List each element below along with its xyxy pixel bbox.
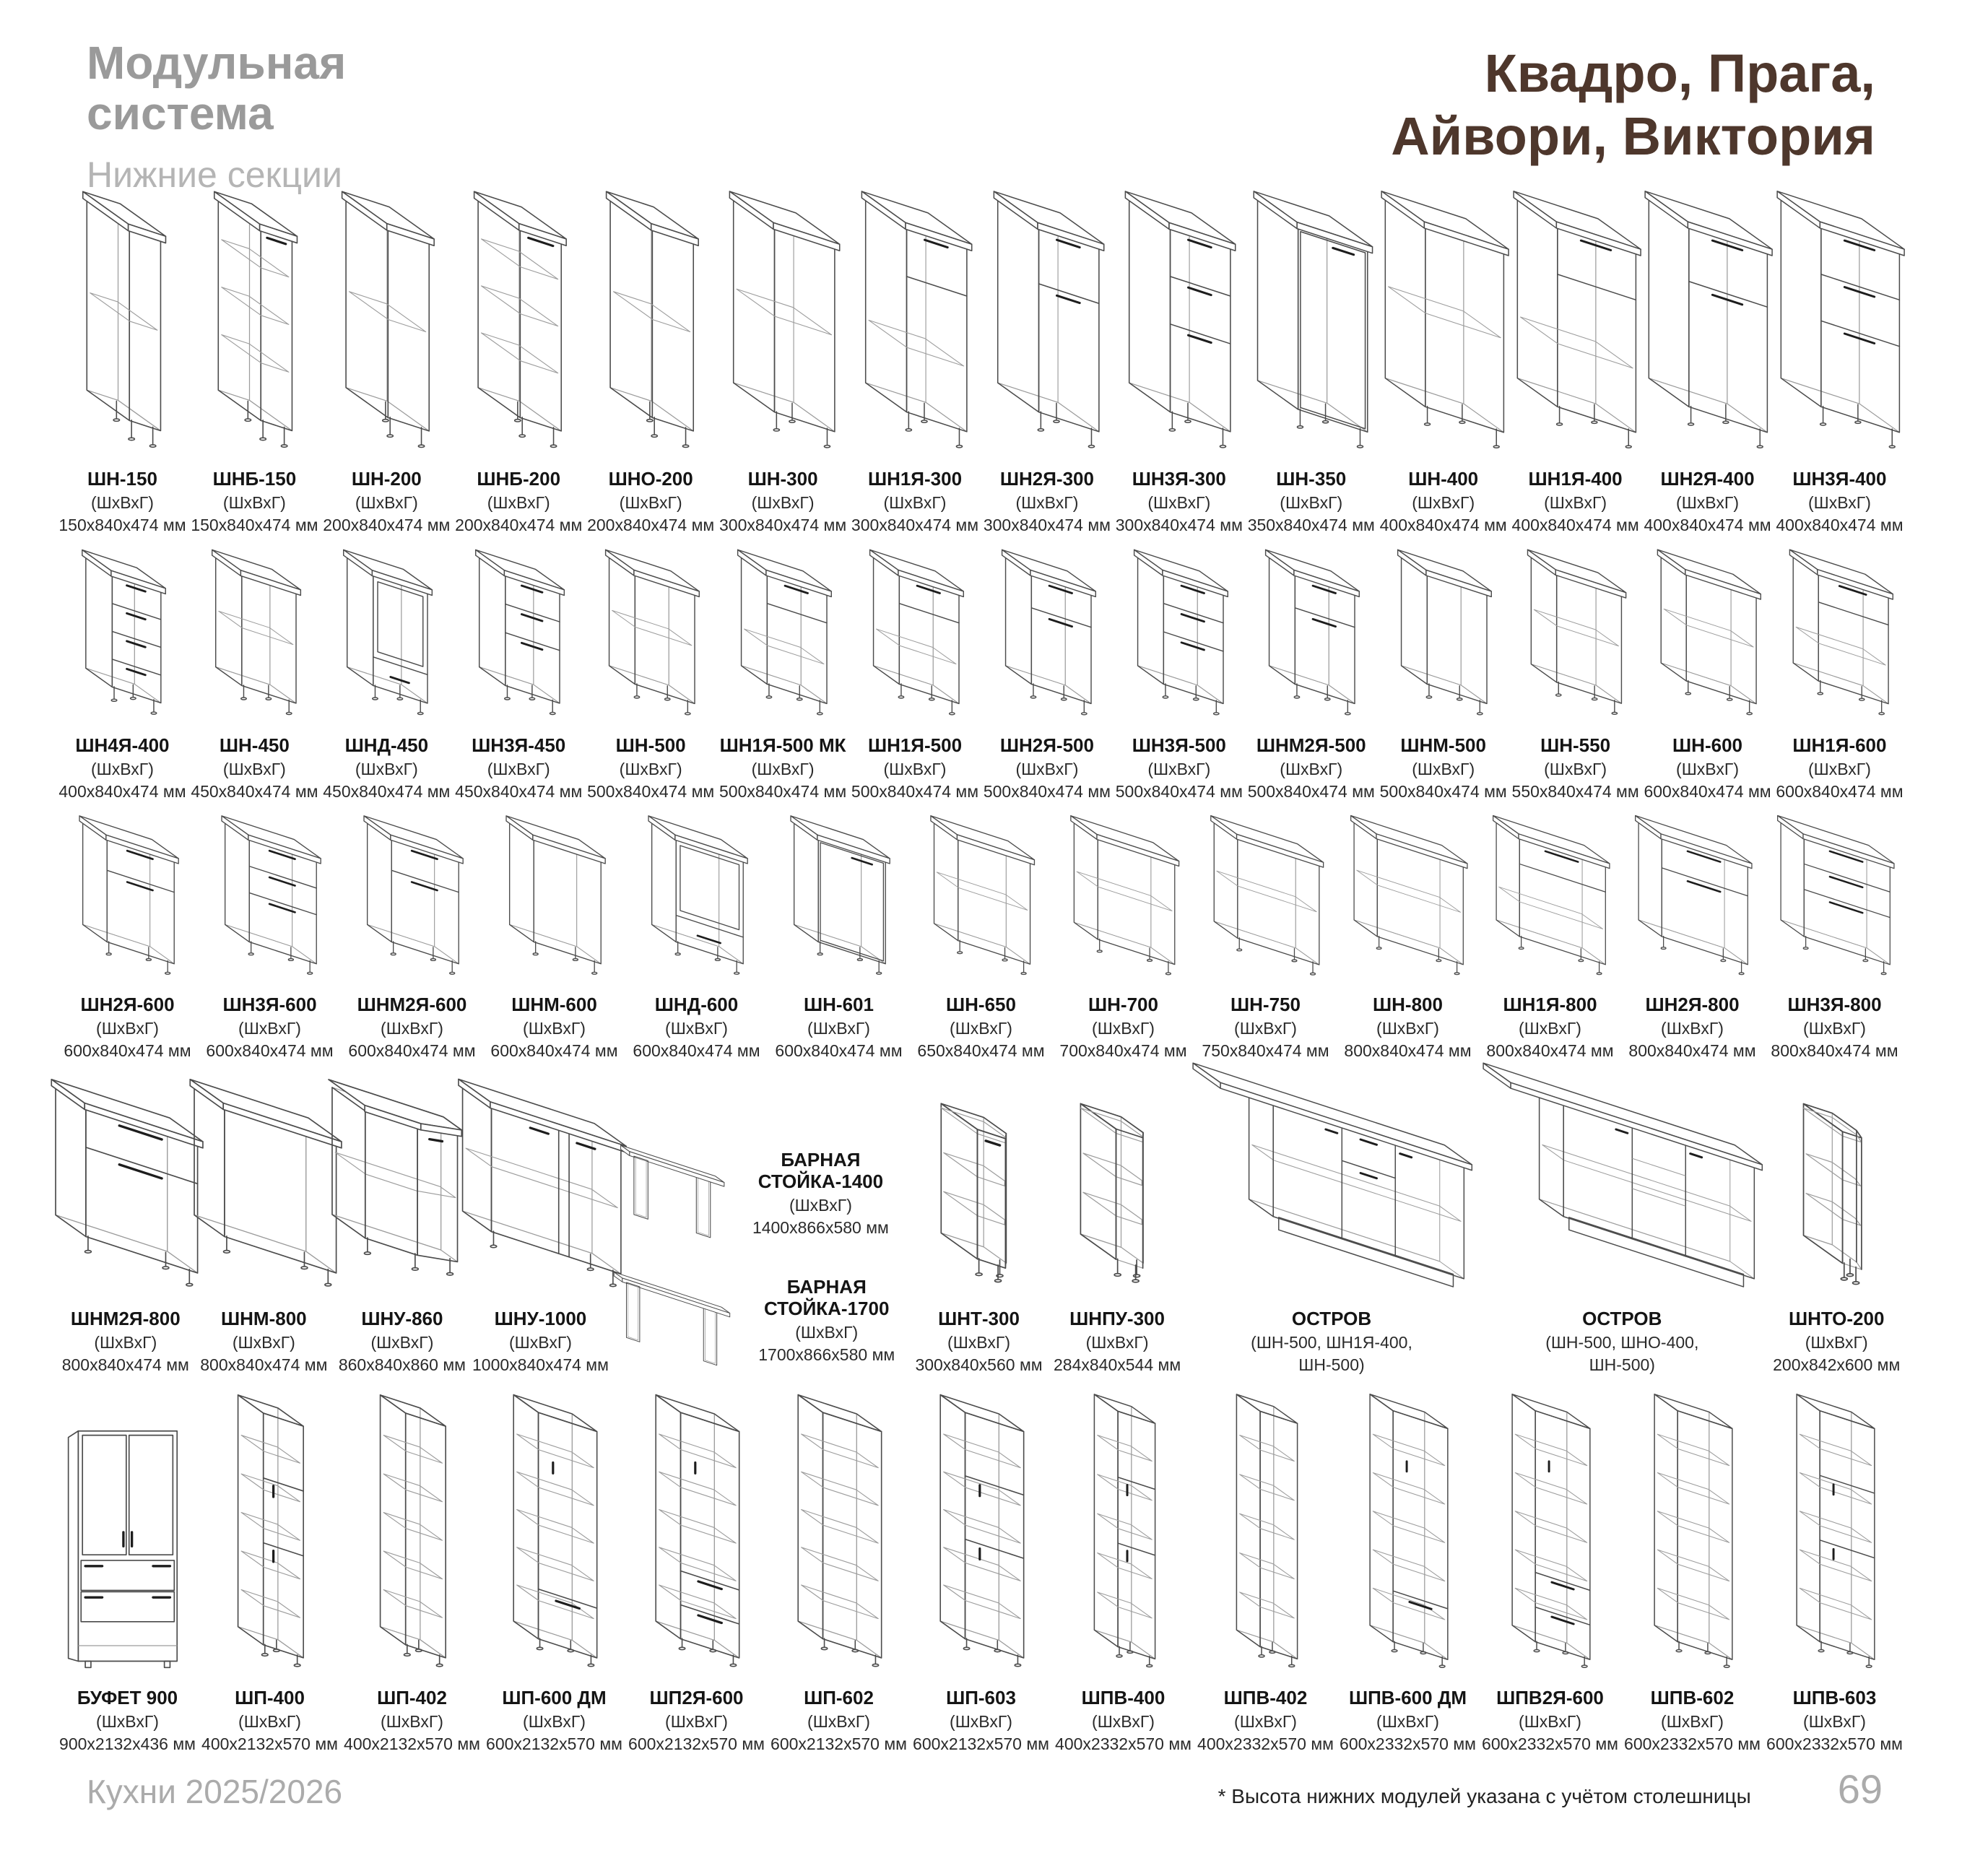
cabinet-drawing	[1225, 1386, 1306, 1677]
dims-value: 400х840х474 мм	[1644, 516, 1771, 535]
product-card: ШН-800(ШхВхГ)800х840х474 мм	[1337, 809, 1479, 1061]
dims-caption: (ШхВхГ)	[620, 760, 682, 779]
drawing-area	[357, 809, 466, 983]
product-name: ШН-150	[87, 468, 157, 490]
dims-caption: (ШхВхГ)	[1544, 760, 1607, 779]
dims-value: 400х2132х570 мм	[201, 1734, 338, 1754]
dims-caption: (ШхВхГ)	[1519, 1019, 1581, 1038]
dims-value: 400х840х474 мм	[1380, 516, 1507, 535]
dims-caption: (ШхВхГ)	[238, 1019, 301, 1038]
dims-caption: (ШхВхГ)	[807, 1712, 870, 1732]
product-card: ШН4Я-400(ШхВхГ)400х840х474 мм	[56, 542, 188, 802]
cabinet-drawing	[75, 544, 170, 724]
product-name: ШН-700	[1088, 994, 1158, 1016]
dims-caption: (ШхВхГ)	[223, 493, 286, 513]
drawing-area	[1345, 809, 1471, 983]
product-name: ШН1Я-500	[868, 734, 962, 757]
dims-caption: (ШхВхГ)	[1661, 1712, 1724, 1732]
drawing-area	[368, 1382, 455, 1677]
cabinet-drawing	[722, 185, 844, 458]
product-card: ШНУ-1000(ШхВхГ)1000х840х474 мм	[472, 1068, 610, 1375]
dims-value: 700х840х474 мм	[1059, 1041, 1186, 1061]
product-name: ШНД-600	[655, 994, 738, 1016]
drawing-area	[929, 1068, 1030, 1298]
catalog-brand: Кухни 2025/2026	[87, 1772, 342, 1811]
drawing-area	[469, 542, 568, 724]
product-card: ШНБ-150(ШхВхГ)150х840х474 мм	[188, 182, 321, 535]
dims-value: 500х840х474 мм	[587, 782, 714, 802]
drawing-area	[599, 182, 703, 458]
cabinet-drawing	[1064, 810, 1183, 983]
cabinet-drawing	[1345, 810, 1471, 983]
dims-value: 400х2332х570 мм	[1197, 1734, 1334, 1754]
dims-caption: (ШхВхГ)	[1544, 493, 1607, 513]
drawing-area	[1638, 182, 1776, 458]
dims-value: 800х840х474 мм	[1486, 1041, 1613, 1061]
cabinet-drawing	[784, 810, 893, 983]
product-card: ШН-200(ШхВхГ)200х840х474 мм	[321, 182, 453, 535]
dims-caption: (ШхВхГ)	[487, 760, 550, 779]
drawing-area	[1501, 1382, 1599, 1677]
dims-value: 500х840х474 мм	[851, 782, 978, 802]
cabinet-drawing	[1127, 544, 1232, 724]
dims-value: 200х840х474 мм	[323, 516, 450, 535]
dims-value: 600х840х474 мм	[1644, 782, 1771, 802]
product-name: ШНМ2Я-600	[357, 994, 467, 1016]
product-card: ШН3Я-400(ШхВхГ)400х840х474 мм	[1774, 182, 1906, 535]
dims-caption: (ШхВхГ)	[1676, 760, 1739, 779]
product-name: ШН2Я-300	[1000, 468, 1094, 490]
dims-value: 600х840х474 мм	[348, 1041, 475, 1061]
drawing-area	[337, 542, 436, 724]
cabinet-drawing	[731, 544, 835, 724]
product-card: ШПВ2Я-600(ШхВхГ)600х2332х570 мм	[1479, 1382, 1621, 1754]
dims-caption: (ШхВхГ)	[950, 1019, 1012, 1038]
dims-value: 450х840х474 мм	[323, 782, 450, 802]
dims-caption: (ШхВхГ)	[523, 1712, 586, 1732]
product-name: ШНБ-150	[213, 468, 297, 490]
product-card: ОСТРОВ(ШН-500, ШН1Я-400,ШН-500)	[1186, 1068, 1477, 1375]
product-card: ШПВ-400(ШхВхГ)400х2332х570 мм	[1052, 1382, 1194, 1754]
dims-caption: (ШхВхГ)	[509, 1333, 572, 1352]
product-name: ШН4Я-400	[75, 734, 169, 757]
dims-caption: (ШхВхГ)	[1376, 1019, 1439, 1038]
dims-caption: (ШхВхГ)	[1803, 1712, 1866, 1732]
drawing-area	[722, 182, 844, 458]
dims-value: 600х840х474 мм	[633, 1041, 760, 1061]
drawing-area	[1127, 542, 1232, 724]
cabinet-drawing	[1246, 185, 1376, 458]
dims-value: 400х2332х570 мм	[1055, 1734, 1191, 1754]
dims-caption: (ШхВхГ)	[94, 1333, 157, 1352]
product-name: ШНУ-1000	[495, 1308, 587, 1330]
cabinet-drawing	[1118, 185, 1240, 458]
dims-caption: (ШхВхГ)	[1280, 493, 1342, 513]
product-name: ШН-550	[1540, 734, 1610, 757]
drawing-area	[995, 542, 1100, 724]
product-card: ШНО-200(ШхВхГ)200х840х474 мм	[585, 182, 717, 535]
dims-value: ШН-500)	[1298, 1355, 1364, 1375]
dims-value: 600х2332х570 мм	[1766, 1734, 1903, 1754]
drawing-area	[1118, 182, 1240, 458]
product-name: ШН-450	[220, 734, 290, 757]
product-name: ШПВ2Я-600	[1496, 1687, 1604, 1709]
drawing-area	[451, 1068, 630, 1298]
dims-caption: (ШхВхГ)	[487, 493, 550, 513]
product-card: ШНПУ-300(ШхВхГ)284х840х544 мм	[1048, 1068, 1186, 1375]
cabinet-drawing	[337, 544, 436, 724]
cabinet-drawing	[616, 1141, 728, 1248]
page-header: Модульная система Нижние секции Квадро, …	[0, 0, 1962, 175]
dims-value: 500х840х474 мм	[719, 782, 846, 802]
product-card: ШН3Я-800(ШхВхГ)800х840х474 мм	[1763, 809, 1906, 1061]
drawing-area	[1521, 542, 1630, 724]
product-name: ШПВ-600 ДМ	[1349, 1687, 1467, 1709]
dims-value: 300х840х474 мм	[719, 516, 846, 535]
dims-value: 150х840х474 мм	[58, 516, 186, 535]
drawing-area	[205, 542, 305, 724]
dims-caption: (ШхВхГ)	[355, 493, 418, 513]
collections-title: Квадро, Прага, Айвори, Виктория	[1391, 42, 1875, 168]
product-name: ШН3Я-400	[1792, 468, 1886, 490]
dims-value: 650х840х474 мм	[917, 1041, 1044, 1061]
cabinet-drawing	[502, 1386, 607, 1677]
dims-value: 400х2132х570 мм	[344, 1734, 480, 1754]
drawing-area	[1477, 1068, 1766, 1298]
dims-caption: (ШхВхГ)	[91, 493, 154, 513]
dims-value: 1700х866х580 мм	[744, 1345, 910, 1365]
cabinet-drawing	[786, 1386, 891, 1677]
dims-caption: (ШхВхГ)	[1808, 493, 1871, 513]
cabinet-drawing	[207, 185, 302, 458]
drawing-area	[75, 542, 170, 724]
product-name: БАРНАЯ СТОЙКА-1700	[744, 1277, 910, 1320]
dims-value: 600х2332х570 мм	[1624, 1734, 1761, 1754]
product-card: ШН-500(ШхВхГ)500х840х474 мм	[585, 542, 717, 802]
cabinet-drawing	[929, 1088, 1030, 1298]
dims-caption: (ШхВхГ)	[744, 1323, 910, 1342]
dims-value: 450х840х474 мм	[455, 782, 582, 802]
dims-caption: (ШхВхГ)	[523, 1019, 586, 1038]
product-name: ШН-350	[1276, 468, 1346, 490]
product-card: ШНМ2Я-600(ШхВхГ)600х840х474 мм	[341, 809, 483, 1061]
product-name: ШН1Я-600	[1792, 734, 1886, 757]
product-name: ШН3Я-600	[222, 994, 316, 1016]
cabinet-drawing	[995, 544, 1100, 724]
cabinet-drawing	[73, 810, 182, 983]
dims-value: 300х840х474 мм	[851, 516, 978, 535]
product-name: БУФЕТ 900	[77, 1687, 178, 1709]
dims-caption: (ШхВхГ)	[381, 1019, 443, 1038]
product-row: ШН-150(ШхВхГ)150х840х474 ммШНБ-150(ШхВхГ…	[0, 182, 1962, 535]
product-card: ШН1Я-300(ШхВхГ)300х840х474 мм	[849, 182, 981, 535]
dims-value: 1400х866х580 мм	[737, 1218, 903, 1238]
product-card: ШН-350(ШхВхГ)350х840х474 мм	[1245, 182, 1377, 535]
dims-caption: (ШН-500, ШН1Я-400,	[1251, 1333, 1412, 1352]
drawing-area	[1651, 542, 1765, 724]
dims-caption: (ШхВхГ)	[1234, 1019, 1297, 1038]
product-name: ШН-600	[1672, 734, 1742, 757]
product-name: ШН2Я-600	[80, 994, 174, 1016]
drawing-area	[1629, 809, 1755, 983]
product-name: ШНПУ-300	[1069, 1308, 1165, 1330]
cabinet-drawing	[599, 544, 703, 724]
dims-caption: (ШхВхГ)	[1808, 760, 1871, 779]
drawing-area	[1204, 809, 1327, 983]
dims-caption: (ШхВхГ)	[96, 1019, 159, 1038]
product-card: ШН3Я-600(ШхВхГ)600х840х474 мм	[199, 809, 341, 1061]
product-card: ШНМ-500(ШхВхГ)500х840х474 мм	[1377, 542, 1509, 802]
dims-caption: (ШхВхГ)	[91, 760, 154, 779]
cabinet-drawing	[368, 1386, 455, 1677]
product-row: ШН2Я-600(ШхВхГ)600х840х474 ммШН3Я-600(Шх…	[0, 809, 1962, 1061]
product-name: ШН-650	[946, 994, 1016, 1016]
product-name: ШН1Я-500 МК	[720, 734, 846, 757]
product-card: ШП-600 ДМ(ШхВхГ)600х2132х570 мм	[483, 1382, 625, 1754]
dims-caption: (ШхВхГ)	[1280, 760, 1342, 779]
dims-caption: (ШхВхГ)	[620, 493, 682, 513]
dims-caption: (ШхВхГ)	[96, 1712, 159, 1732]
product-card: ШНМ-800(ШхВхГ)800х840х474 мм	[195, 1068, 334, 1375]
drawing-area	[854, 182, 976, 458]
cabinet-drawing	[1638, 185, 1776, 458]
dims-caption: (ШхВхГ)	[1092, 1712, 1155, 1732]
cabinet-drawing	[1771, 810, 1898, 983]
drawing-area	[863, 542, 968, 724]
cabinet-drawing	[1783, 544, 1897, 724]
drawing-area	[599, 542, 703, 724]
product-name: ШПВ-400	[1082, 1687, 1166, 1709]
product-name: ШНМ-600	[511, 994, 597, 1016]
dims-caption: (ШхВхГ)	[665, 1712, 728, 1732]
drawing-area	[1506, 182, 1645, 458]
drawing-area	[207, 182, 302, 458]
dims-value: 300х840х560 мм	[915, 1355, 1042, 1375]
drawing-area	[1259, 542, 1363, 724]
product-card: ШН1Я-800(ШхВхГ)800х840х474 мм	[1479, 809, 1621, 1061]
product-card: ШН-150(ШхВхГ)150х840х474 мм	[56, 182, 188, 535]
drawing-area	[1487, 809, 1613, 983]
product-card: ШН1Я-500 МК(ШхВхГ)500х840х474 мм	[717, 542, 849, 802]
product-card: ШП2Я-600(ШхВхГ)600х2132х570 мм	[625, 1382, 768, 1754]
drawing-area	[929, 1382, 1033, 1677]
dims-value: 400х840х474 мм	[58, 782, 186, 802]
product-card: ШП-402(ШхВхГ)400х2132х570 мм	[341, 1382, 483, 1754]
product-name: ШН2Я-500	[1000, 734, 1094, 757]
dims-value: 800х840х474 мм	[1344, 1041, 1471, 1061]
product-name: ШН-601	[804, 994, 874, 1016]
drawing-area	[1374, 182, 1513, 458]
catalog-section-title: Модульная система	[87, 38, 346, 139]
product-grid: ШН-150(ШхВхГ)150х840х474 ммШНБ-150(ШхВхГ…	[0, 182, 1962, 1754]
dims-caption: (ШхВхГ)	[1015, 760, 1078, 779]
cabinet-drawing	[1359, 1386, 1457, 1677]
product-name: ШПВ-602	[1651, 1687, 1735, 1709]
dims-caption: (ШхВхГ)	[884, 760, 947, 779]
cabinet-drawing	[1068, 1088, 1167, 1298]
dims-value: 600х840х474 мм	[206, 1041, 333, 1061]
product-card: ШН1Я-500(ШхВхГ)500х840х474 мм	[849, 542, 981, 802]
product-card: ШП-602(ШхВхГ)600х2132х570 мм	[768, 1382, 910, 1754]
cabinet-drawing	[1391, 544, 1496, 724]
drawing-area	[500, 809, 609, 983]
dims-value: 500х840х474 мм	[1116, 782, 1243, 802]
dims-caption: (ШхВхГ)	[737, 1196, 903, 1215]
dims-caption: (ШхВхГ)	[1519, 1712, 1581, 1732]
product-card: ШН-550(ШхВхГ)550х840х474 мм	[1509, 542, 1641, 802]
product-name: ШН3Я-500	[1132, 734, 1226, 757]
dims-caption: (ШхВхГ)	[355, 760, 418, 779]
dims-caption: (ШхВхГ)	[223, 760, 286, 779]
product-card: ОСТРОВ(ШН-500, ШНО-400,ШН-500)	[1477, 1068, 1767, 1375]
cabinet-drawing	[929, 1386, 1033, 1677]
product-name: ШН2Я-800	[1645, 994, 1739, 1016]
drawing-area	[924, 809, 1038, 983]
drawing-area	[57, 1382, 199, 1677]
product-name: ШП-400	[235, 1687, 305, 1709]
dims-value: 400х840х474 мм	[1512, 516, 1639, 535]
cabinet-drawing	[215, 810, 324, 983]
product-name: ШП-402	[377, 1687, 447, 1709]
footnote: * Высота нижних модулей указана с учётом…	[1218, 1785, 1751, 1808]
cabinet-drawing	[1501, 1386, 1599, 1677]
cabinet-drawing	[1374, 185, 1513, 458]
product-card: ШН2Я-300(ШхВхГ)300х840х474 мм	[981, 182, 1113, 535]
cabinet-drawing	[599, 185, 703, 458]
product-card: БАРНАЯ СТОЙКА-1400(ШхВхГ)1400х866х580 мм	[609, 1139, 909, 1248]
cabinet-drawing	[1487, 810, 1613, 983]
dims-caption: (ШхВхГ)	[1661, 1019, 1724, 1038]
dims-caption: (ШхВхГ)	[238, 1712, 301, 1732]
dims-caption: (ШхВхГ)	[1412, 760, 1475, 779]
dims-value: 1000х840х474 мм	[472, 1355, 609, 1375]
product-card: ШН3Я-300(ШхВхГ)300х840х474 мм	[1113, 182, 1245, 535]
cabinet-drawing	[334, 185, 438, 458]
cabinet-drawing	[854, 185, 976, 458]
product-card: ШПВ-402(ШхВхГ)400х2332х570 мм	[1194, 1382, 1337, 1754]
product-name: ШН-200	[352, 468, 422, 490]
product-card: ШН-600(ШхВхГ)600х840х474 мм	[1641, 542, 1774, 802]
dims-caption: (ШхВхГ)	[1676, 493, 1739, 513]
dims-caption: (ШН-500, ШНО-400,	[1545, 1333, 1698, 1352]
drawing-area	[1246, 182, 1376, 458]
cabinet-drawing	[1477, 1075, 1766, 1298]
dims-caption: (ШхВхГ)	[1412, 493, 1475, 513]
product-card: ШП-400(ШхВхГ)400х2132х570 мм	[199, 1382, 341, 1754]
dims-caption: (ШхВхГ)	[1234, 1712, 1297, 1732]
cabinet-drawing	[226, 1386, 313, 1677]
dims-value: 600х840х474 мм	[1776, 782, 1903, 802]
cabinet-drawing	[924, 810, 1038, 983]
dims-caption: (ШхВхГ)	[1086, 1333, 1149, 1352]
dims-value: 400х840х474 мм	[1776, 516, 1903, 535]
cabinet-drawing	[642, 810, 751, 983]
dims-caption: (ШхВхГ)	[1805, 1333, 1868, 1352]
dims-value: 300х840х474 мм	[1116, 516, 1243, 535]
dims-value: 860х840х860 мм	[339, 1355, 466, 1375]
dims-caption: (ШхВхГ)	[1147, 493, 1210, 513]
drawing-area	[226, 1382, 313, 1677]
product-name: ШП-603	[946, 1687, 1016, 1709]
dims-caption: (ШхВхГ)	[381, 1712, 443, 1732]
dims-value: 500х840х474 мм	[1248, 782, 1375, 802]
cabinet-drawing	[1651, 544, 1765, 724]
dims-value: 600х2132х570 мм	[771, 1734, 907, 1754]
dims-value: 600х2332х570 мм	[1340, 1734, 1476, 1754]
product-name: ОСТРОВ	[1292, 1308, 1371, 1330]
drawing-area	[1068, 1068, 1167, 1298]
drawing-area	[75, 182, 170, 458]
product-name: ШН3Я-300	[1132, 468, 1226, 490]
product-card: ШНМ-600(ШхВхГ)600х840х474 мм	[483, 809, 625, 1061]
product-card: ШН-700(ШхВхГ)700х840х474 мм	[1052, 809, 1194, 1061]
dims-caption: (ШхВхГ)	[884, 493, 947, 513]
drawing-area	[644, 1382, 749, 1677]
dims-caption: (ШхВхГ)	[1147, 760, 1210, 779]
product-name: ШНТО-200	[1789, 1308, 1884, 1330]
product-card: БУФЕТ 900(ШхВхГ)900х2132х436 мм	[56, 1382, 199, 1754]
product-card: ШНБ-200(ШхВхГ)200х840х474 мм	[453, 182, 585, 535]
dims-caption: (ШхВхГ)	[233, 1333, 295, 1352]
cabinet-drawing	[205, 544, 305, 724]
cabinet-drawing	[1770, 185, 1909, 458]
product-name: ШНМ2Я-800	[71, 1308, 181, 1330]
dims-value: 350х840х474 мм	[1248, 516, 1375, 535]
product-name: ШН1Я-300	[868, 468, 962, 490]
dims-value: 284х840х544 мм	[1054, 1355, 1181, 1375]
dims-value: 800х840х474 мм	[1628, 1041, 1755, 1061]
product-name: ШНО-200	[609, 468, 693, 490]
cabinet-drawing	[863, 544, 968, 724]
product-card: ШНТО-200(ШхВхГ)200х842х600 мм	[1767, 1068, 1906, 1375]
drawing-area	[73, 809, 182, 983]
drawing-area	[1786, 1382, 1883, 1677]
dims-caption: (ШхВхГ)	[752, 760, 815, 779]
product-card: ШН2Я-500(ШхВхГ)500х840х474 мм	[981, 542, 1113, 802]
product-card: ШН-400(ШхВхГ)400х840х474 мм	[1377, 182, 1509, 535]
drawing-area	[334, 182, 438, 458]
cabinet-drawing	[1791, 1088, 1882, 1298]
product-name: ШНУ-860	[361, 1308, 443, 1330]
product-card: ШН1Я-600(ШхВхГ)600х840х474 мм	[1774, 542, 1906, 802]
product-row: ШН4Я-400(ШхВхГ)400х840х474 ммШН-450(ШхВх…	[0, 542, 1962, 802]
product-card: ШН-450(ШхВхГ)450х840х474 мм	[188, 542, 321, 802]
cabinet-drawing	[500, 810, 609, 983]
cabinet-drawing	[1506, 185, 1645, 458]
product-name: ШП-600 ДМ	[502, 1687, 606, 1709]
dims-caption: (ШхВхГ)	[1092, 1019, 1155, 1038]
cabinet-drawing	[1786, 1386, 1883, 1677]
dims-value: ШН-500)	[1589, 1355, 1655, 1375]
product-name: ШНМ-800	[221, 1308, 307, 1330]
product-card: ШН2Я-600(ШхВхГ)600х840х474 мм	[56, 809, 199, 1061]
product-name: ШН-500	[616, 734, 686, 757]
dims-value: 600х2132х570 мм	[913, 1734, 1049, 1754]
product-card: ШН2Я-400(ШхВхГ)400х840х474 мм	[1641, 182, 1774, 535]
product-card: ШН-650(ШхВхГ)650х840х474 мм	[910, 809, 1052, 1061]
dims-value: 600х840х474 мм	[64, 1041, 191, 1061]
dims-value: 500х840х474 мм	[1380, 782, 1507, 802]
product-card: ШП-603(ШхВхГ)600х2132х570 мм	[910, 1382, 1052, 1754]
cabinet-drawing	[75, 185, 170, 458]
product-card: ШПВ-603(ШхВхГ)600х2332х570 мм	[1763, 1382, 1906, 1754]
product-name: ШНД-450	[345, 734, 428, 757]
bar-stand-group: БАРНАЯ СТОЙКА-1400(ШхВхГ)1400х866х580 мм…	[609, 1139, 909, 1375]
product-card: ШНД-600(ШхВхГ)600х840х474 мм	[625, 809, 768, 1061]
product-name: БАРНАЯ СТОЙКА-1400	[737, 1150, 903, 1193]
dims-value: 300х840х474 мм	[984, 516, 1111, 535]
product-name: ШНТ-300	[938, 1308, 1020, 1330]
